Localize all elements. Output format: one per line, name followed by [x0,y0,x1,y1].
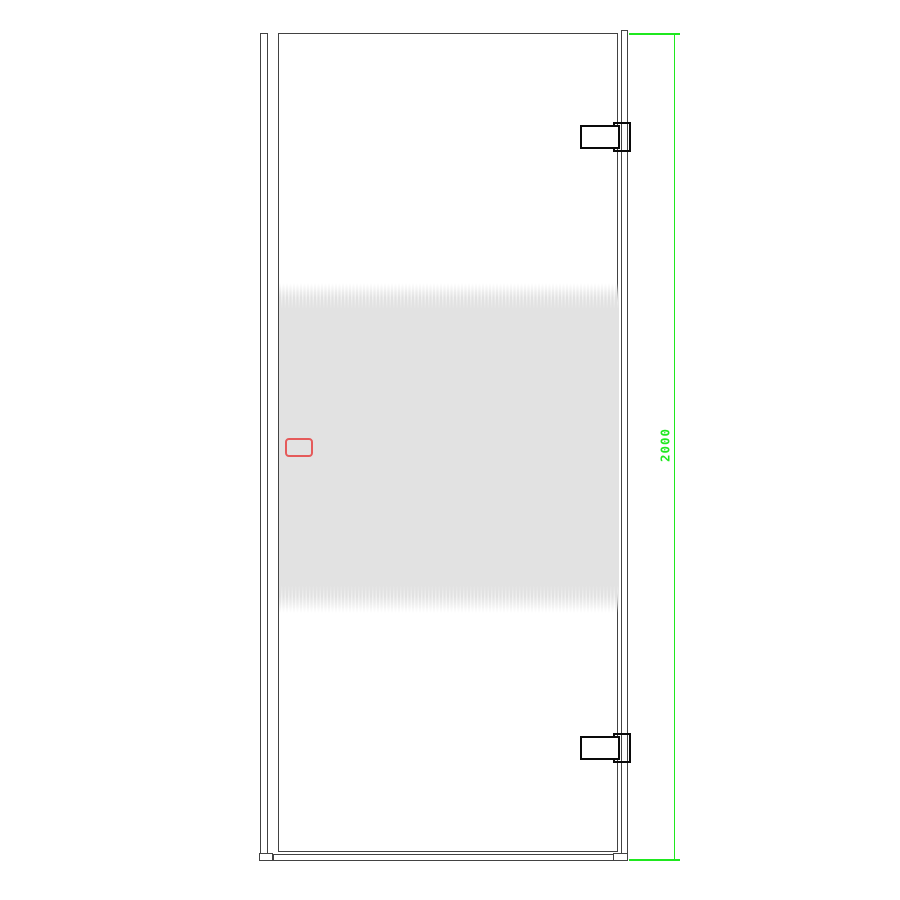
dimension-extension-line-top [629,33,680,35]
dimension-line-vertical [674,34,676,861]
cad-drawing-canvas: 2000 [0,0,900,900]
dimension-extension-line-bottom [629,859,680,861]
wall-profile-left [260,33,268,855]
dimension-label: 2000 [657,428,672,462]
frosted-privacy-band [279,283,619,613]
hinge-side-profile [621,30,628,854]
bottom-seal-end-cap-left [259,853,273,861]
door-handle-marker [285,438,313,458]
frost-stripes-fringe-layer [279,283,619,613]
hinge-top-plate [580,125,620,149]
bottom-seal-end-cap-right [613,853,628,862]
hinge-bottom-plate [580,736,620,760]
bottom-seal-bar [273,854,614,861]
